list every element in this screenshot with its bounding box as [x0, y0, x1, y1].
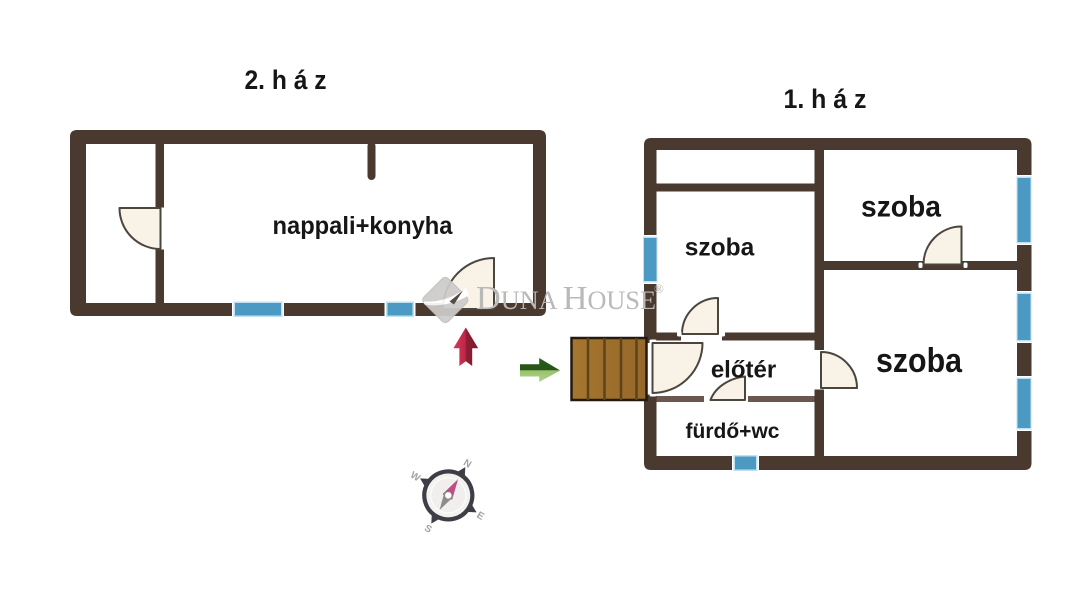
svg-text:W: W	[408, 470, 422, 485]
svg-text:®: ®	[654, 281, 664, 296]
svg-text:DUNA HOUSE: DUNA HOUSE	[476, 280, 656, 317]
svg-text:1. h á z: 1. h á z	[784, 84, 867, 114]
svg-text:2. h á z: 2. h á z	[245, 65, 327, 95]
svg-text:szoba: szoba	[876, 342, 963, 380]
svg-text:szoba: szoba	[685, 234, 756, 262]
svg-text:S: S	[422, 523, 434, 536]
svg-text:nappali+konyha: nappali+konyha	[273, 212, 454, 240]
svg-text:szoba: szoba	[861, 191, 941, 224]
svg-text:fürdő+wc: fürdő+wc	[686, 420, 780, 443]
svg-text:előtér: előtér	[711, 357, 776, 384]
